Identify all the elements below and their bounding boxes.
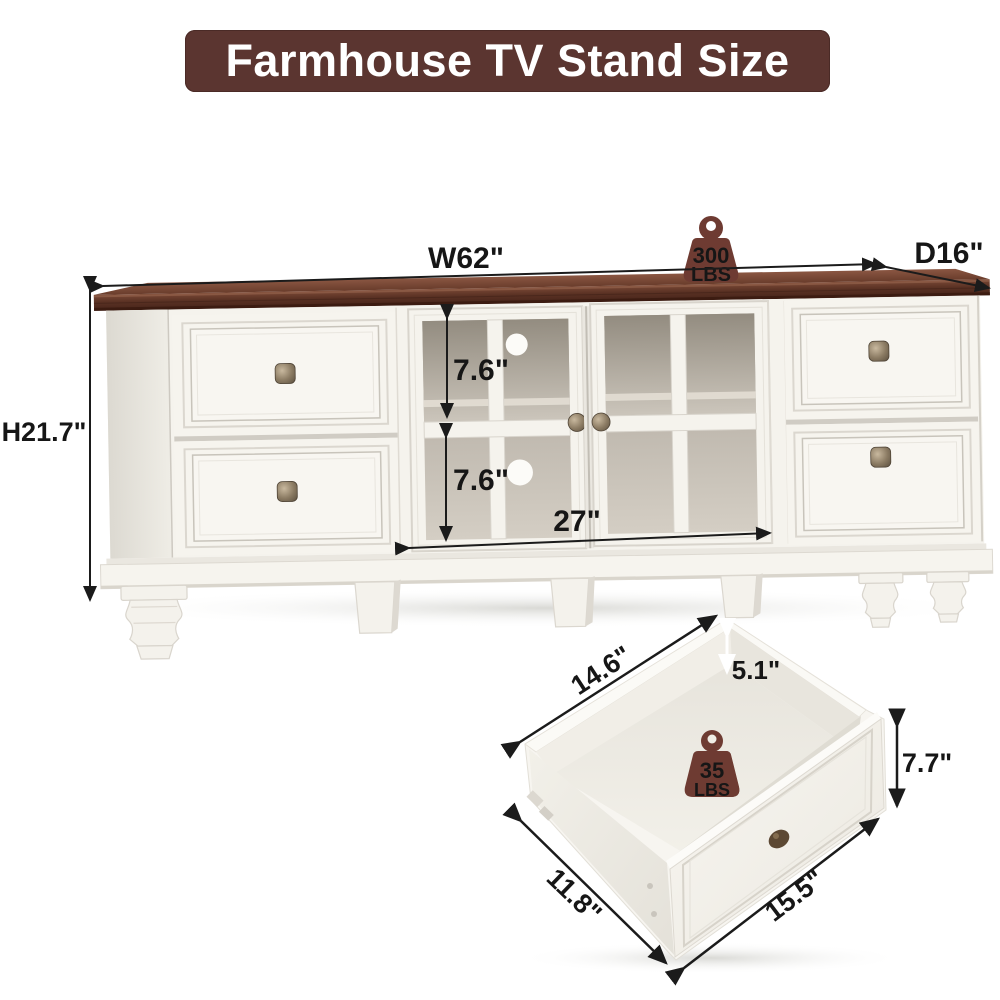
height-dimension: H21.7": [2, 290, 90, 600]
width-label: W62": [428, 242, 504, 275]
height-label: H21.7": [2, 417, 87, 447]
drawer-inner-height-label: 5.1": [732, 655, 780, 685]
drawer-weight-unit: LBS: [694, 780, 730, 800]
diagram-graphic: 300 LBS W62" D16" H21.7" 7.6" 7.6" 27": [0, 0, 1000, 1000]
left-drawer-top: [172, 312, 398, 437]
lower-opening-label: 7.6": [453, 464, 509, 497]
carved-leg-left: [121, 585, 188, 659]
weight-300lbs-icon: 300 LBS: [684, 216, 739, 286]
square-leg: [551, 576, 596, 627]
right-drawer-bottom: [786, 421, 980, 544]
drawer-front-height-label: 7.7": [902, 748, 952, 778]
right-glass-door: [590, 301, 772, 546]
right-drawer-top: [784, 297, 978, 419]
door-knob: [592, 413, 610, 431]
center-width-label: 27": [553, 505, 601, 538]
upper-opening-label: 7.6": [453, 354, 509, 387]
drawer-knob: [871, 447, 891, 467]
door-knob: [568, 413, 586, 431]
cabinet-left-side-face: [106, 310, 172, 559]
square-leg: [355, 580, 402, 634]
product-size-diagram: Farmhouse TV Stand Size: [0, 0, 1000, 1000]
drawer-front-height-dimension: 7.7": [897, 726, 952, 806]
drawer-knob: [275, 363, 295, 383]
left-drawer-bottom: [174, 438, 400, 556]
drawer-knob: [277, 481, 297, 501]
drawer-knob: [869, 341, 889, 361]
depth-label: D16": [914, 237, 983, 270]
square-leg: [721, 573, 764, 618]
